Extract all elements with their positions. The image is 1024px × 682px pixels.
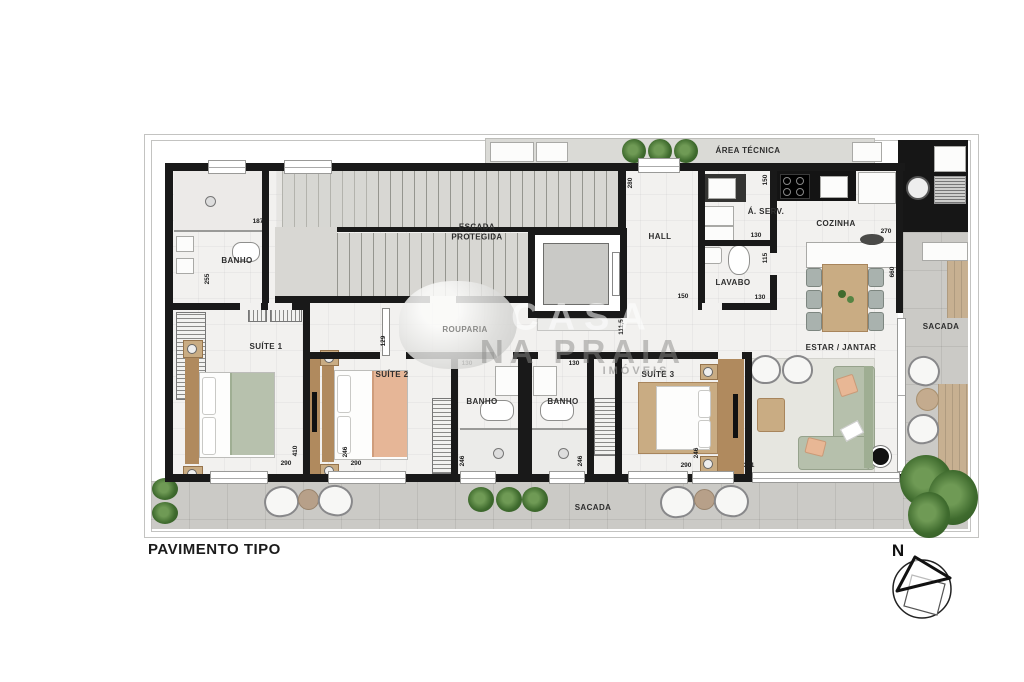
dimension: 290 xyxy=(351,461,362,468)
vanity-banho3 xyxy=(533,366,557,396)
door-opening xyxy=(702,303,722,310)
wall-segment xyxy=(896,163,903,313)
dimension: 246 xyxy=(694,448,701,459)
armchair xyxy=(750,355,781,384)
wall-segment xyxy=(587,352,594,476)
bed-suite1-headboard xyxy=(185,358,199,464)
door-opening xyxy=(268,303,292,310)
dining-chair xyxy=(806,312,822,331)
room-label-rouparia: ROUPARIA xyxy=(442,325,487,335)
dimension: 371 xyxy=(744,463,755,470)
room-label-escada: ESCADA PROTEGIDA xyxy=(451,223,502,244)
sliding-glass-door xyxy=(897,318,906,472)
hvac-unit xyxy=(536,142,568,162)
room-label-sacada-lateral: SACADA xyxy=(923,322,960,332)
room-label-area-tecnica: ÁREA TÉCNICA xyxy=(716,146,781,156)
stair-upper-fade xyxy=(277,171,377,227)
dimension: 115 xyxy=(763,253,770,264)
sink-suite1-b xyxy=(176,258,194,274)
wall-segment xyxy=(262,163,269,310)
wall-segment xyxy=(528,228,535,318)
dimension: 246 xyxy=(460,456,467,467)
wall-segment xyxy=(698,163,705,310)
room-label-hall: HALL xyxy=(649,232,672,242)
wall-segment xyxy=(525,352,532,476)
window xyxy=(549,471,585,484)
bed-suite1-blanket xyxy=(230,373,274,455)
table-plant-icon xyxy=(838,290,846,298)
window xyxy=(328,471,406,484)
balcony-table xyxy=(916,388,939,411)
laundry-tank xyxy=(708,178,736,199)
dining-chair xyxy=(868,290,884,309)
door-opening xyxy=(718,352,742,359)
room-label-banho-suite1: BANHO xyxy=(221,256,252,266)
wall-segment xyxy=(615,352,622,476)
side-table xyxy=(872,448,889,465)
bed-pillow xyxy=(337,375,351,413)
shower-suite1 xyxy=(174,170,262,232)
window xyxy=(210,471,268,484)
window xyxy=(692,471,734,484)
shower-banho2 xyxy=(460,428,520,474)
bed-pillow xyxy=(202,377,216,415)
burner-icon xyxy=(783,188,791,196)
wall-segment xyxy=(310,352,630,359)
tv-suite2 xyxy=(312,392,317,432)
dimension: 270 xyxy=(881,229,892,236)
dimension: 129 xyxy=(381,336,388,347)
dimension: 255 xyxy=(205,274,212,285)
dimension: 246 xyxy=(578,456,585,467)
plant xyxy=(468,487,494,512)
wall-segment xyxy=(303,308,310,476)
vanity-banho2 xyxy=(495,366,519,396)
wall-segment xyxy=(620,228,627,318)
lavabo-sink xyxy=(702,247,722,264)
wall-segment xyxy=(275,296,535,303)
room-label-suite2: SUÍTE 2 xyxy=(375,370,408,380)
dining-chair xyxy=(806,290,822,309)
wall-segment xyxy=(451,352,458,476)
balcony-table xyxy=(694,489,715,510)
window xyxy=(460,471,496,484)
door-opening xyxy=(240,303,261,310)
stair-landing xyxy=(275,227,337,296)
door-opening xyxy=(430,296,456,303)
hvac-unit xyxy=(490,142,534,162)
coffee-table xyxy=(757,398,785,432)
window xyxy=(208,160,246,174)
door-opening xyxy=(494,352,513,359)
dining-chair xyxy=(868,268,884,287)
laundry-cabinet-a xyxy=(704,206,734,226)
kitchen-sink xyxy=(820,176,848,198)
room-label-sacada-frontal: SACADA xyxy=(575,503,612,513)
wall-segment xyxy=(165,163,905,171)
island-sink xyxy=(860,234,884,245)
ac-condenser xyxy=(934,146,966,172)
burner-icon xyxy=(796,188,804,196)
wall-segment xyxy=(528,311,627,318)
closet-suite3-strip xyxy=(594,398,616,456)
plant xyxy=(152,502,178,524)
burner-icon xyxy=(796,177,804,185)
window xyxy=(628,471,688,484)
door-opening xyxy=(538,352,557,359)
room-label-lavabo: LAVABO xyxy=(716,278,751,288)
dimension: 410 xyxy=(293,446,300,457)
room-label-banho-suite3: BANHO xyxy=(547,397,578,407)
door-leaf xyxy=(382,308,390,356)
balcony-bench xyxy=(922,242,968,261)
sliding-glass-door xyxy=(752,472,900,483)
dimension: 187 xyxy=(253,219,264,226)
burner-icon xyxy=(783,177,791,185)
armchair xyxy=(782,355,813,384)
dimension: 130 xyxy=(462,361,473,368)
sofa-backrest xyxy=(864,366,873,468)
dimension: 130 xyxy=(569,361,580,368)
balcony-table xyxy=(298,489,319,510)
deck-wood-upper xyxy=(947,258,968,318)
wardrobe-suite3 xyxy=(718,356,744,478)
room-label-banho-suite2: BANHO xyxy=(466,397,497,407)
page-title: PAVIMENTO TIPO xyxy=(148,541,281,558)
lamp-icon xyxy=(703,459,713,469)
dimension: 290 xyxy=(681,463,692,470)
hvac-unit xyxy=(852,142,882,162)
bed-pillow xyxy=(698,390,711,418)
shower-head-icon xyxy=(558,448,569,459)
room-label-suite1: SUÍTE 1 xyxy=(249,342,282,352)
lamp-icon xyxy=(187,344,197,354)
wall-segment xyxy=(165,163,173,481)
sink-suite1-a xyxy=(176,236,194,252)
room-label-area-servico: Á. SERV. xyxy=(748,207,785,217)
dining-chair xyxy=(868,312,884,331)
room-label-suite3: SUÍTE 3 xyxy=(641,370,674,380)
lamp-icon xyxy=(703,367,713,377)
floor-plan-page: BANHO ESCADA PROTEGIDA HALL Á. SERV. LAV… xyxy=(0,0,1024,682)
room-label-cozinha: COZINHA xyxy=(816,219,855,229)
shower-head-icon xyxy=(493,448,504,459)
elevator-landing xyxy=(537,318,621,331)
bed-suite2-blanket xyxy=(372,371,407,457)
room-label-estar-jantar: ESTAR / JANTAR xyxy=(806,343,877,353)
plant xyxy=(522,487,548,512)
plant xyxy=(496,487,522,512)
table-plant-icon xyxy=(847,296,854,303)
dimension: 130 xyxy=(755,295,766,302)
elevator-door xyxy=(612,252,620,296)
elevator-cab xyxy=(543,243,609,305)
dining-chair xyxy=(806,268,822,287)
dimension: 246 xyxy=(343,447,350,458)
tv-suite3 xyxy=(733,394,738,438)
dimension: 280 xyxy=(628,178,635,189)
wall-segment xyxy=(705,240,777,246)
fridge xyxy=(858,172,896,204)
entry-door xyxy=(638,158,680,173)
wall-segment xyxy=(518,352,525,476)
dimension: 150 xyxy=(763,175,770,186)
shower-head-icon xyxy=(205,196,216,207)
compass-rose xyxy=(870,538,980,648)
dimension: 660 xyxy=(890,267,897,278)
bed-pillow xyxy=(202,417,216,455)
dimension: 111,5 xyxy=(619,319,626,335)
tree xyxy=(908,492,950,538)
dimension: 150 xyxy=(678,294,689,301)
dimension: 130 xyxy=(751,233,762,240)
bed-pillow xyxy=(698,420,711,448)
grill-icon xyxy=(906,176,930,200)
wall-segment xyxy=(618,163,626,235)
dimension: 290 xyxy=(281,461,292,468)
wall-segment xyxy=(745,352,752,476)
lavabo-toilet xyxy=(728,245,750,275)
vent-grille-icon xyxy=(934,176,966,204)
wall-segment xyxy=(528,228,627,235)
dining-table xyxy=(822,264,868,332)
bed-suite2-headboard xyxy=(322,366,334,462)
window xyxy=(284,160,332,174)
